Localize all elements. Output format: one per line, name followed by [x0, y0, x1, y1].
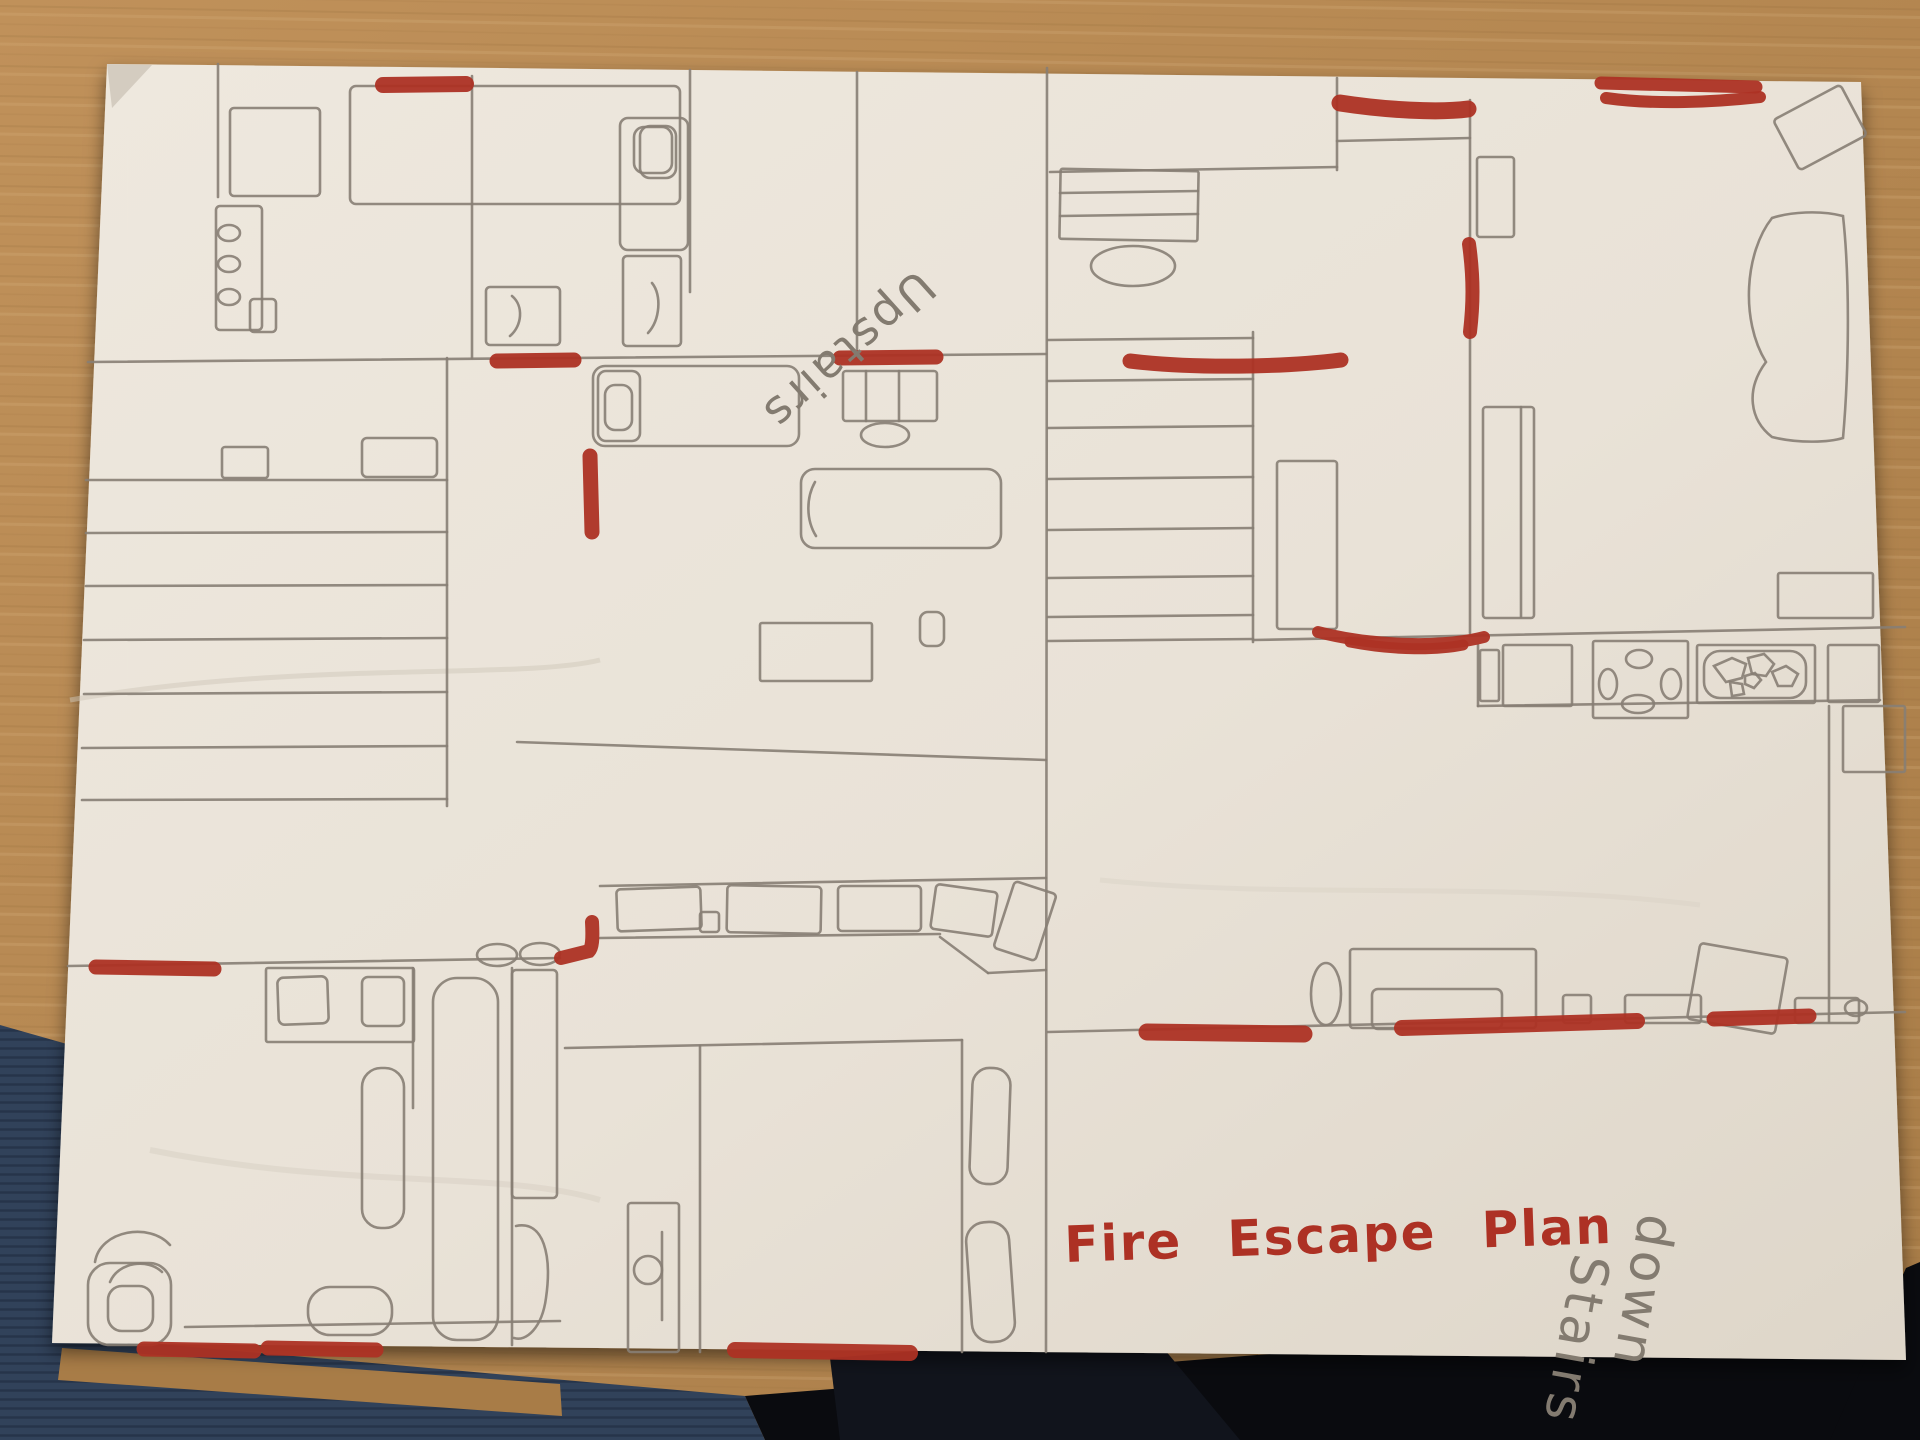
wall-line	[1046, 68, 1047, 1352]
exit-top-corner-stroke1	[1601, 83, 1756, 87]
exit-right-wall-vertical	[1469, 244, 1473, 332]
exit-middle-vertical-door	[590, 456, 592, 532]
exit-living-bottom-right	[1714, 1016, 1809, 1019]
exit-bathroom-bottom1	[144, 1349, 254, 1351]
photo-of-fire-escape-plan: UpstairsdownStairsFire Escape Plan	[0, 0, 1920, 1440]
exit-top-left-bedroom	[383, 84, 466, 85]
exit-left-bathroom-wall	[96, 967, 214, 969]
exit-top-corner-stroke2	[1606, 97, 1760, 102]
wall-line	[82, 799, 447, 800]
exit-midleft-door	[497, 360, 574, 361]
exit-right-of-center-door	[1130, 360, 1341, 366]
exit-living-bottom-left	[1147, 1032, 1304, 1034]
wall-line	[86, 532, 447, 533]
exit-paper-bottom-center	[735, 1350, 910, 1353]
fire-escape-plan-drawing: UpstairsdownStairsFire Escape Plan	[0, 0, 1920, 1440]
exit-living-bottom-center	[1402, 1021, 1637, 1028]
exit-bathroom-bottom2	[268, 1348, 376, 1350]
wall-line	[86, 585, 447, 586]
exit-top-right-wall	[1340, 103, 1468, 111]
